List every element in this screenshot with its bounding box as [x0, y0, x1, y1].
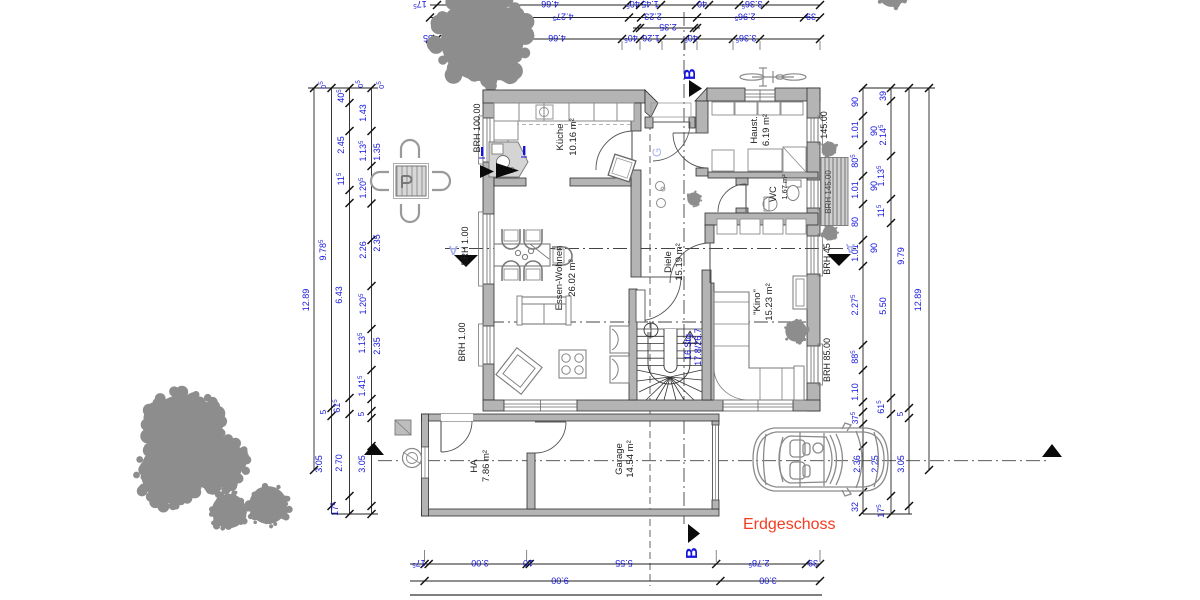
svg-text:2.35: 2.35 [659, 22, 677, 32]
svg-text:12.89: 12.89 [913, 289, 923, 312]
svg-text:1.45: 1.45 [641, 0, 659, 9]
svg-text:BRH 100.00: BRH 100.00 [472, 103, 482, 152]
svg-text:2.35: 2.35 [372, 337, 382, 355]
svg-text:Garage: Garage [614, 443, 625, 475]
svg-text:6.43: 6.43 [334, 286, 344, 304]
svg-text:7.86 m²: 7.86 m² [481, 450, 492, 482]
svg-text:WC: WC [768, 186, 779, 202]
svg-text:16 Stg: 16 Stg [683, 334, 693, 360]
svg-text:145.00: 145.00 [819, 111, 829, 139]
svg-text:15.19 m²: 15.19 m² [674, 243, 685, 281]
svg-text:2.23: 2.23 [644, 12, 662, 22]
svg-text:"Kino": "Kino" [752, 289, 763, 315]
svg-text:2.70: 2.70 [334, 454, 344, 472]
svg-text:3.00: 3.00 [759, 576, 777, 586]
svg-text:1.35: 1.35 [372, 143, 382, 161]
svg-text:4.66: 4.66 [548, 33, 566, 43]
svg-text:BRH 45: BRH 45 [822, 243, 832, 275]
svg-text:1.26: 1.26 [642, 33, 660, 43]
svg-text:10.16 m²: 10.16 m² [568, 118, 579, 156]
svg-text:A: A [448, 243, 458, 258]
svg-text:39: 39 [806, 12, 816, 22]
svg-text:2.36: 2.36 [852, 455, 862, 473]
svg-text:4.66: 4.66 [541, 0, 559, 9]
svg-text:2.45: 2.45 [336, 136, 346, 154]
svg-text:BRH 145.00: BRH 145.00 [824, 170, 833, 214]
svg-text:Diele: Diele [663, 251, 674, 273]
svg-text:B: B [684, 547, 701, 559]
svg-text:90: 90 [869, 243, 879, 253]
svg-text:HA: HA [469, 459, 480, 473]
svg-text:12.89: 12.89 [301, 289, 311, 312]
svg-text:6.19 m²: 6.19 m² [761, 114, 772, 146]
svg-text:G: G [650, 148, 664, 157]
svg-text:A: A [845, 241, 855, 256]
svg-text:10: 10 [523, 558, 533, 568]
svg-text:1.01: 1.01 [850, 121, 860, 139]
svg-text:2.26: 2.26 [358, 241, 368, 259]
svg-text:15.23 m²: 15.23 m² [764, 283, 775, 321]
svg-text:BRH 85.00: BRH 85.00 [822, 338, 832, 382]
svg-text:39: 39 [808, 558, 818, 568]
svg-text:Haust.: Haust. [749, 116, 760, 143]
svg-text:80: 80 [850, 217, 860, 227]
svg-text:3.05: 3.05 [314, 455, 324, 473]
svg-text:Essen-Wohnen: Essen-Wohnen [554, 246, 565, 311]
svg-text:1.43: 1.43 [358, 104, 368, 122]
svg-text:1.67 m²: 1.67 m² [780, 174, 789, 200]
svg-text:17.8/26.7: 17.8/26.7 [693, 328, 703, 366]
svg-text:5: 5 [896, 411, 905, 416]
svg-text:Küche: Küche [555, 124, 566, 151]
svg-text:1.10: 1.10 [850, 383, 860, 401]
svg-text:BRH 1.00: BRH 1.00 [457, 322, 467, 361]
svg-text:5: 5 [357, 411, 366, 416]
svg-text:39: 39 [878, 91, 888, 101]
svg-text:3.05: 3.05 [357, 455, 367, 473]
svg-text:26.02 m²: 26.02 m² [567, 259, 578, 297]
svg-text:BRH 1.00: BRH 1.00 [460, 226, 470, 265]
svg-text:1.01: 1.01 [850, 181, 860, 199]
svg-text:2.35: 2.35 [372, 234, 382, 252]
svg-text:32: 32 [850, 502, 860, 512]
svg-text:90: 90 [850, 97, 860, 107]
svg-text:5.50: 5.50 [878, 297, 888, 315]
svg-text:3.05: 3.05 [896, 455, 906, 473]
svg-text:3.00: 3.00 [471, 558, 489, 568]
svg-text:9.79: 9.79 [896, 247, 906, 265]
svg-text:14.54 m²: 14.54 m² [625, 440, 636, 478]
svg-text:Erdgeschoss: Erdgeschoss [743, 516, 836, 533]
svg-text:9.00: 9.00 [551, 576, 569, 586]
svg-text:5.55: 5.55 [615, 558, 633, 568]
svg-text:40: 40 [697, 0, 707, 9]
svg-text:5: 5 [319, 409, 328, 414]
svg-text:B: B [682, 68, 699, 80]
